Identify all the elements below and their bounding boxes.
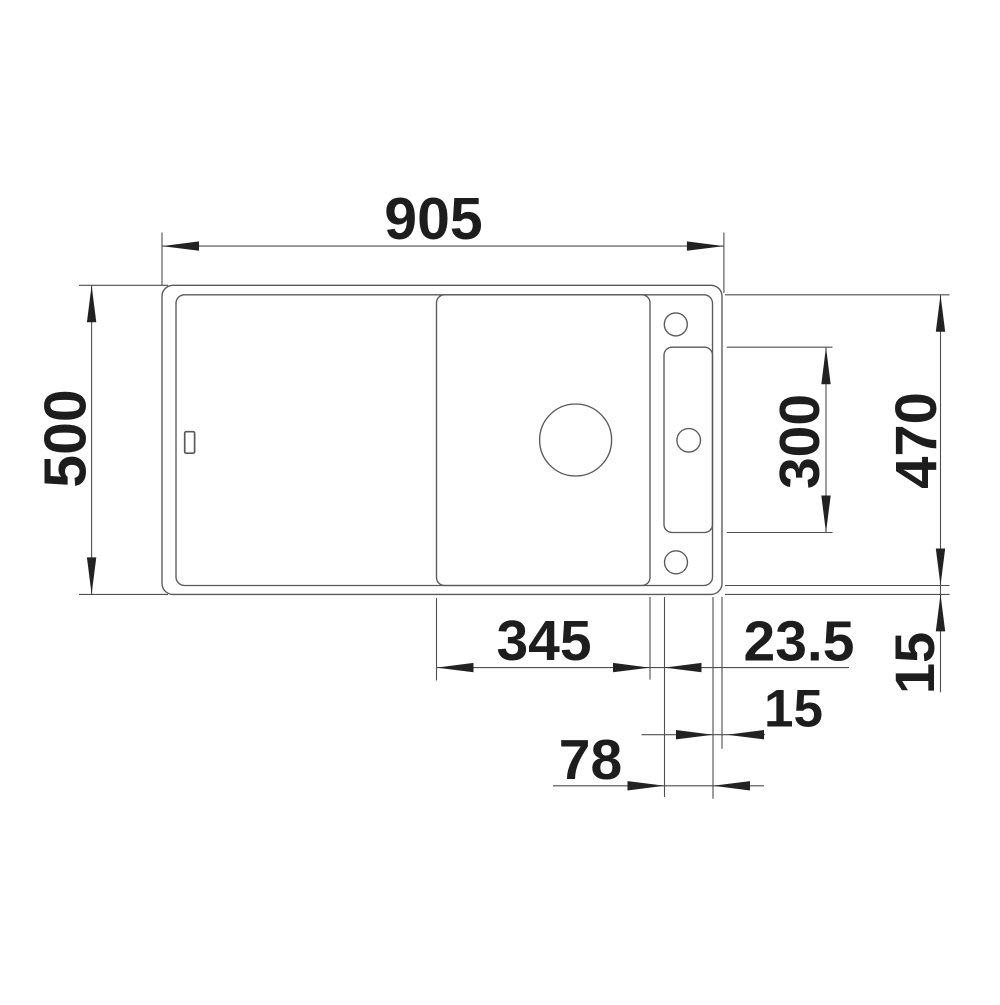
svg-text:470: 470: [884, 392, 949, 489]
svg-text:905: 905: [384, 186, 482, 252]
svg-text:78: 78: [559, 728, 622, 792]
svg-text:15: 15: [883, 632, 946, 694]
svg-text:300: 300: [768, 394, 832, 489]
svg-text:23.5: 23.5: [744, 610, 855, 674]
svg-text:500: 500: [33, 389, 99, 487]
svg-text:15: 15: [764, 679, 823, 738]
svg-text:345: 345: [496, 609, 591, 673]
